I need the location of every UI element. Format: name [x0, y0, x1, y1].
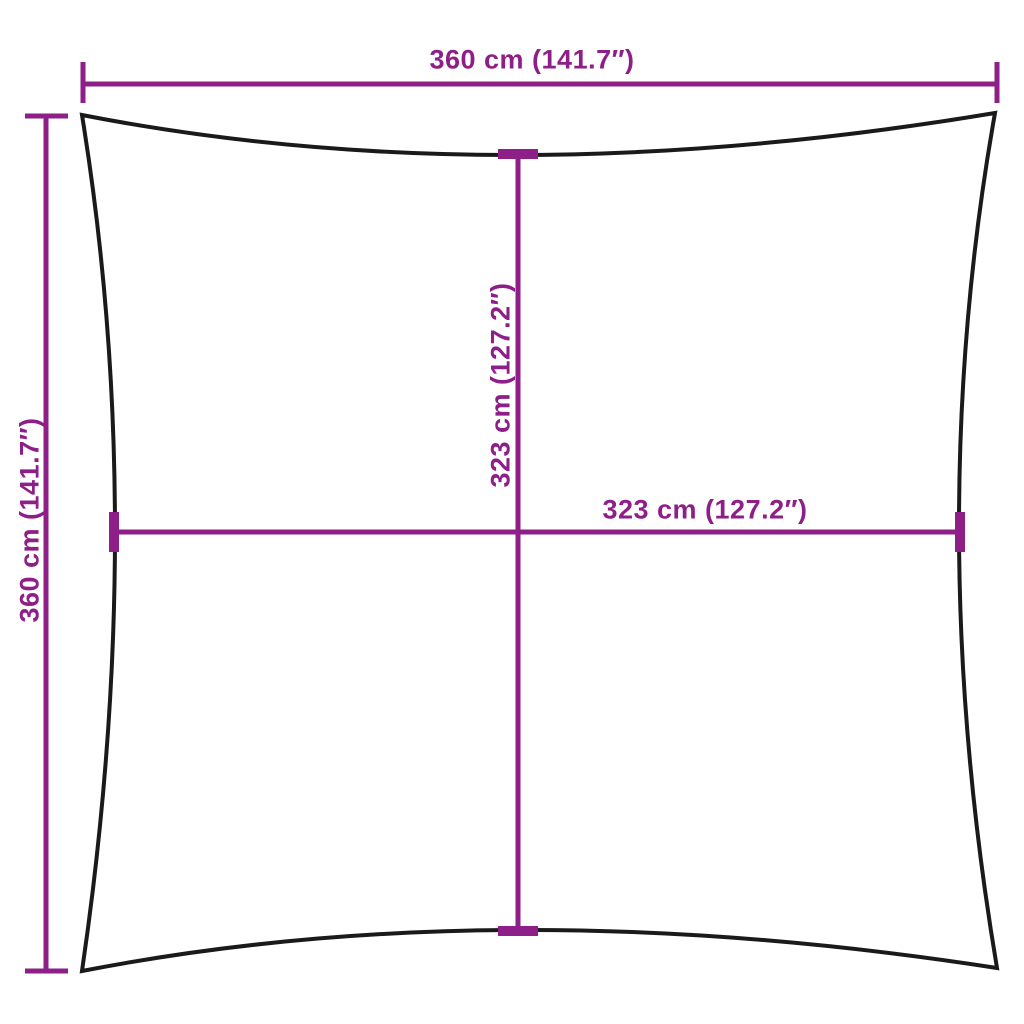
sail-outline — [82, 113, 997, 971]
inner-vertical-dimension-label: 323 cm (127.2″) — [486, 282, 517, 487]
diagram-canvas — [0, 0, 1024, 1024]
top-dimension-label: 360 cm (141.7″) — [429, 45, 634, 76]
diagram-stage: 360 cm (141.7″) 360 cm (141.7″) 323 cm (… — [0, 0, 1024, 1024]
left-dimension-label: 360 cm (141.7″) — [15, 417, 46, 622]
inner-horizontal-dimension-label: 323 cm (127.2″) — [602, 495, 807, 526]
